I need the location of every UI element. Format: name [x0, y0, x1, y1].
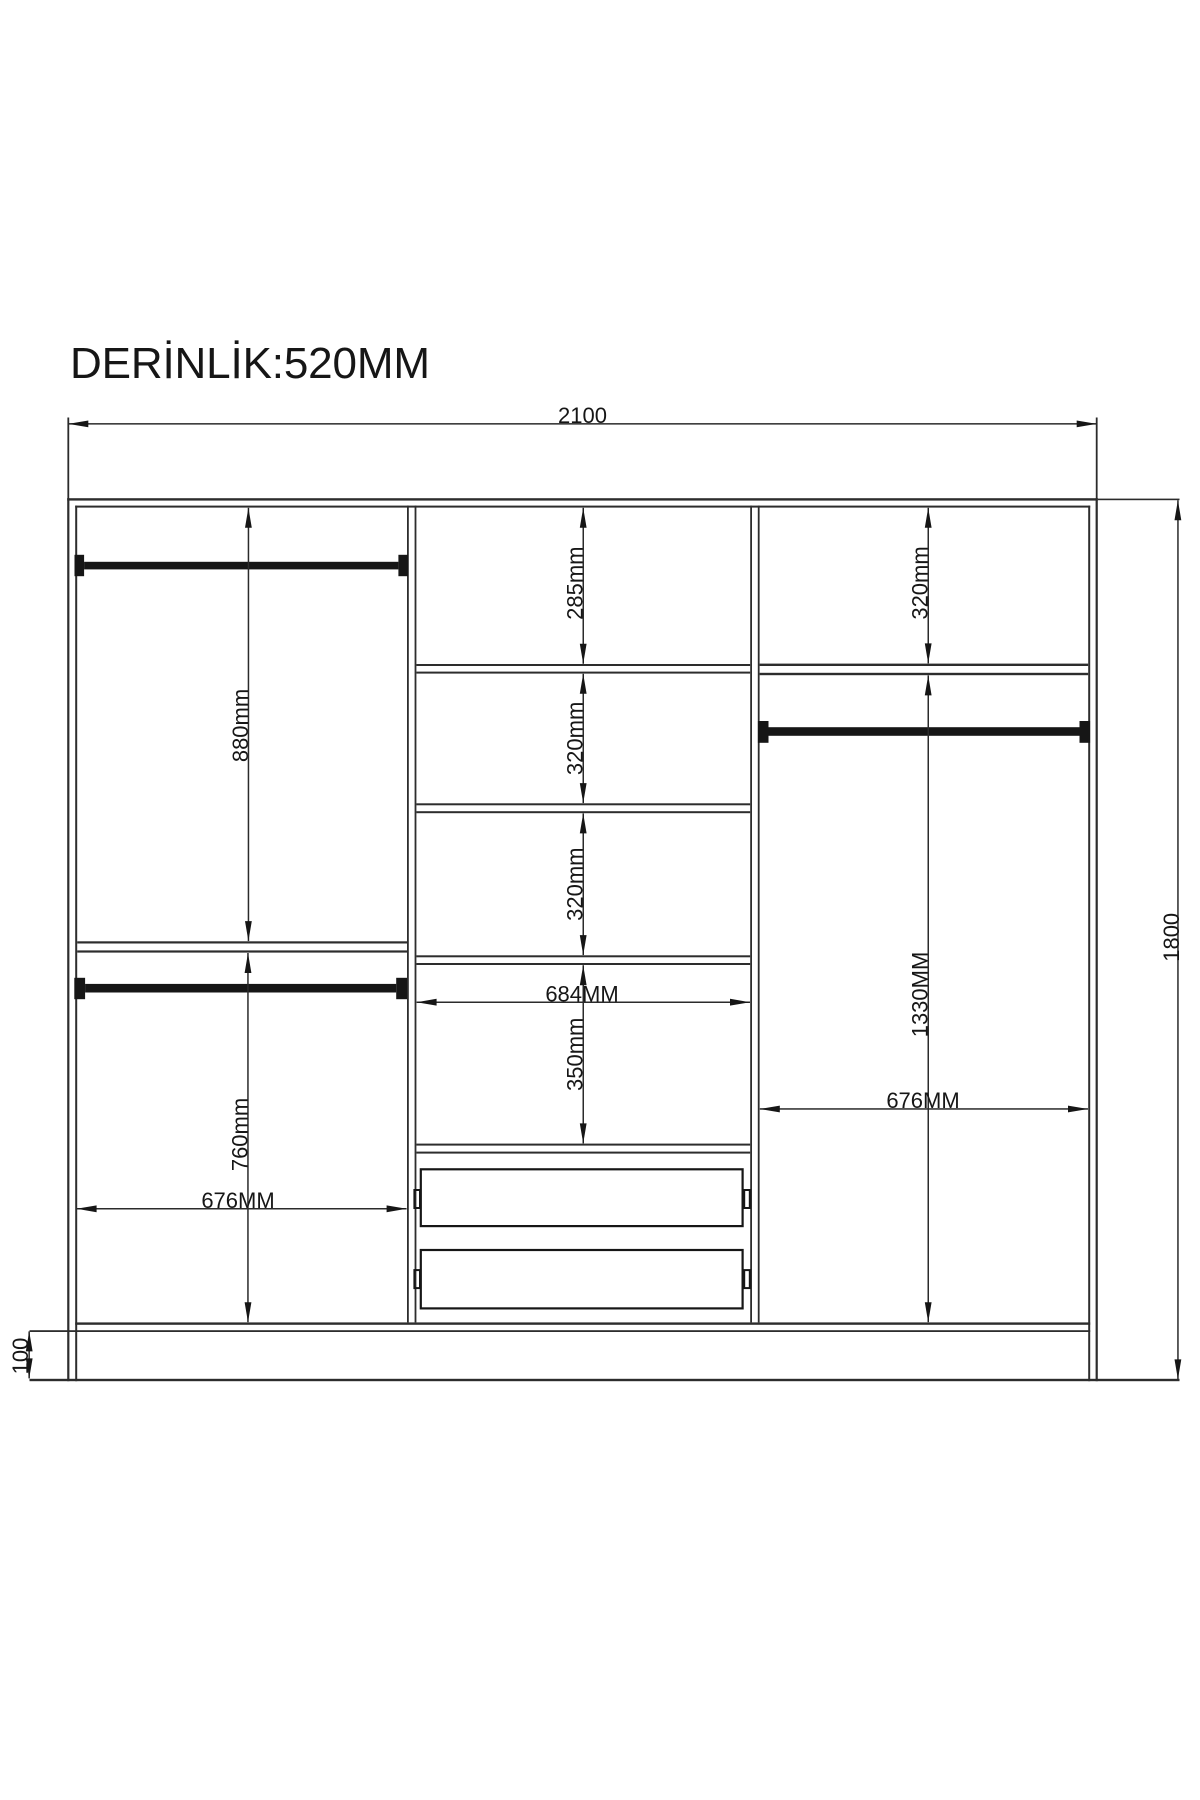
svg-text:285mm: 285mm — [562, 547, 587, 620]
svg-text:684MM: 684MM — [545, 981, 618, 1006]
svg-text:2100: 2100 — [558, 403, 607, 428]
svg-text:350mm: 350mm — [562, 1018, 587, 1091]
svg-text:DERİNLİK:520MM: DERİNLİK:520MM — [70, 339, 430, 388]
svg-text:320mm: 320mm — [562, 702, 587, 775]
svg-text:1800: 1800 — [1159, 913, 1184, 962]
svg-text:676MM: 676MM — [201, 1188, 274, 1213]
svg-text:1330MM: 1330MM — [907, 952, 932, 1038]
svg-text:320mm: 320mm — [562, 848, 587, 921]
svg-text:760mm: 760mm — [228, 1098, 253, 1171]
svg-text:320mm: 320mm — [907, 546, 932, 619]
svg-text:880mm: 880mm — [228, 689, 253, 762]
svg-text:676MM: 676MM — [886, 1088, 959, 1113]
svg-text:100: 100 — [8, 1338, 33, 1375]
